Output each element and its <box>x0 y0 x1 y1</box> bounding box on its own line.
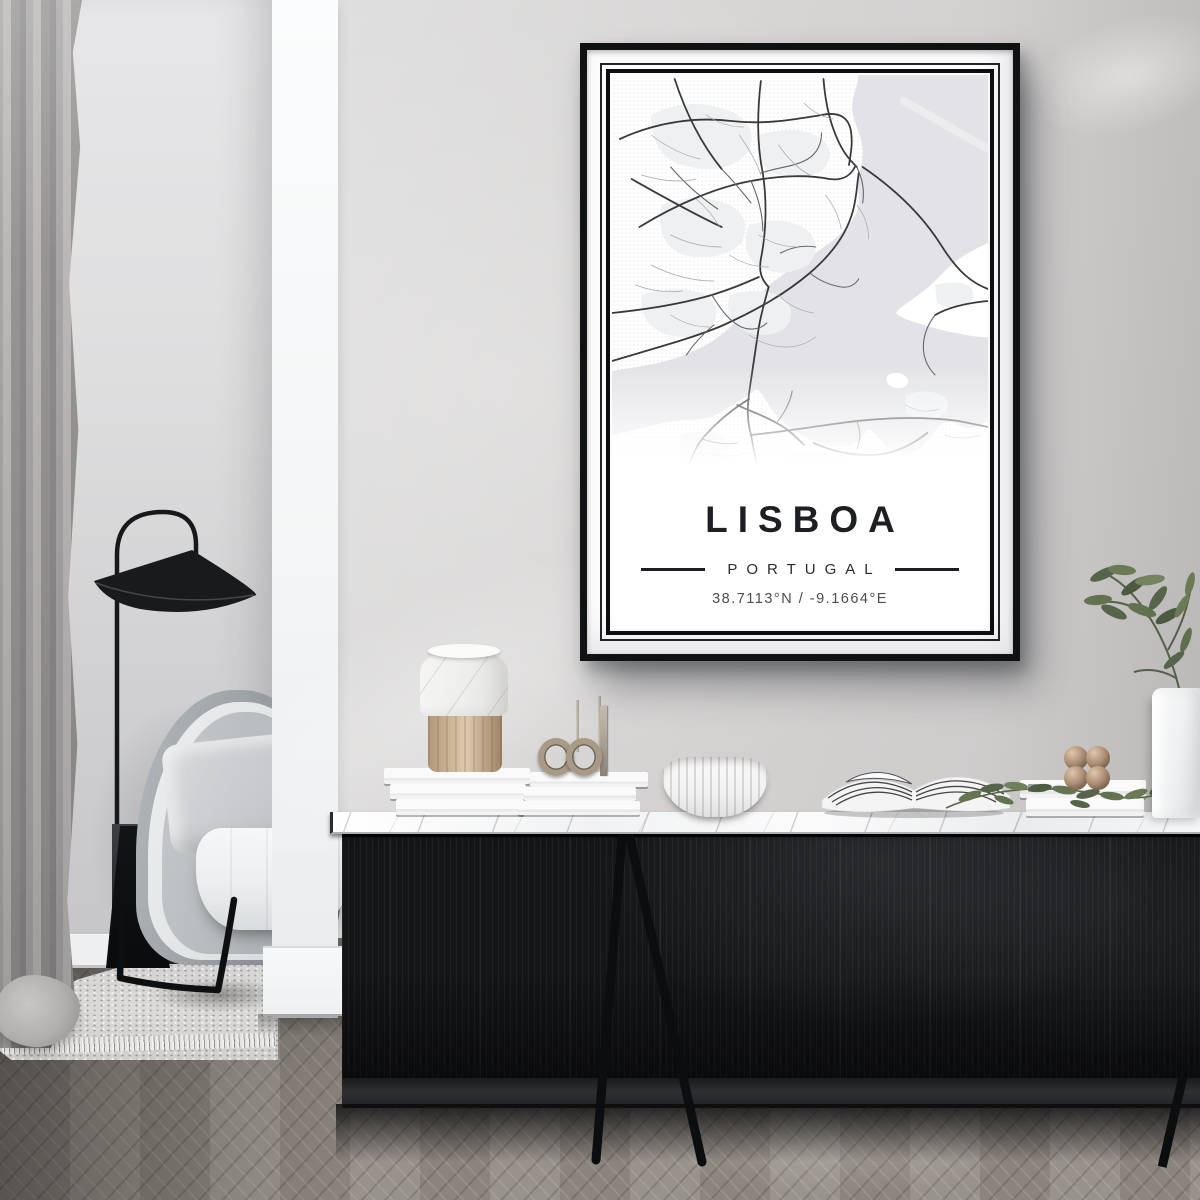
map-fade <box>612 365 988 479</box>
living-room-photo: LISBOA PORTUGAL 38.7113°N / -9.1664°E <box>0 0 1200 1200</box>
book-stack-mid <box>524 787 636 801</box>
poster-subtitle: PORTUGAL <box>718 561 881 578</box>
book-stack-left <box>390 784 526 799</box>
marble-wood-canister-top <box>420 648 508 716</box>
poster-coordinates: 38.7113°N / -9.1664°E <box>612 591 988 607</box>
book-stack-left <box>396 799 524 815</box>
poster-mat: LISBOA PORTUGAL 38.7113°N / -9.1664°E <box>587 50 1013 654</box>
poster-frame: LISBOA PORTUGAL 38.7113°N / -9.1664°E <box>580 43 1020 661</box>
sideboard-floor-shadow <box>336 1104 1200 1162</box>
column-base-shadow <box>258 1014 354 1036</box>
subtitle-line-left <box>641 568 705 572</box>
book-stack-mid <box>518 801 640 815</box>
poster-content: LISBOA PORTUGAL 38.7113°N / -9.1664°E <box>612 75 988 629</box>
sideboard-body <box>342 834 1200 1082</box>
canister-lid <box>428 644 500 658</box>
sideboard-trestle-legs <box>560 834 760 1170</box>
poster-title: LISBOA <box>612 499 988 541</box>
ring-candle-holder <box>566 738 602 776</box>
candle-holder-bar <box>600 706 607 776</box>
subtitle-line-right <box>895 568 959 572</box>
marble-wood-canister-base <box>428 708 502 772</box>
poster-subtitle-row: PORTUGAL <box>612 561 988 578</box>
plant-leaves <box>1084 563 1197 671</box>
white-organic-vase <box>1152 688 1200 818</box>
